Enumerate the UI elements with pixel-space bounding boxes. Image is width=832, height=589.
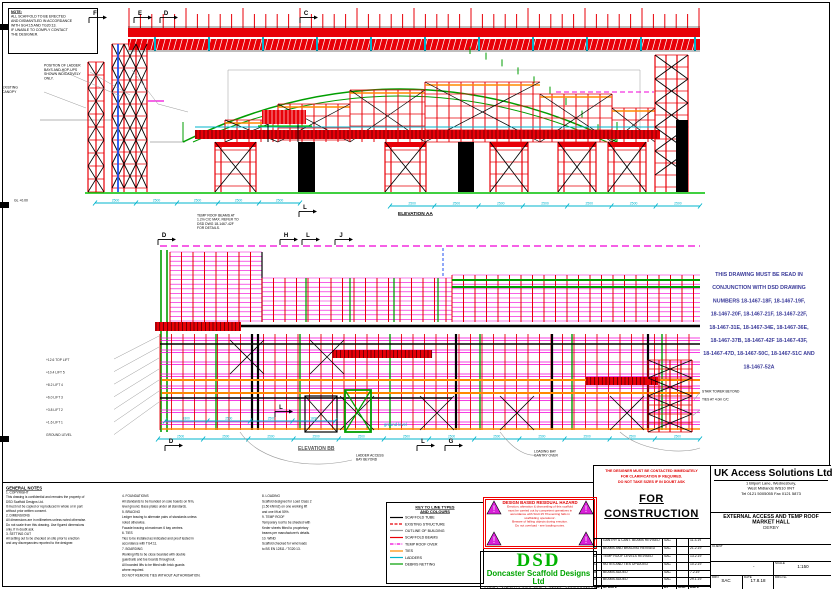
svg-text:L: L (421, 439, 425, 445)
ground-level-label: GL +0.00 (14, 199, 64, 206)
svg-text:2500: 2500 (112, 198, 120, 202)
dsd-logo: DSD (481, 552, 596, 570)
revision-row: CNOTES AND TIES UPDATEDSAC10.2.19 (593, 563, 710, 571)
revision-row: DTEMP ROOF LEVELS REVISEDSAC13.2.19 (593, 555, 710, 563)
svg-text:D: D (164, 11, 169, 17)
text-line: ONLY. (44, 77, 134, 81)
legend-label: EXISTING STRUCTURE (405, 522, 445, 527)
text-line: +10.4 LIFT 5 (46, 367, 116, 380)
legend-item: TIES (390, 547, 480, 554)
svg-text:!: ! (585, 504, 588, 514)
svg-text:2500: 2500 (541, 201, 549, 205)
svg-text:2500: 2500 (268, 416, 275, 420)
text-line: 18-1467-52A (686, 360, 832, 373)
conjunction-note: THIS DRAWING MUST BE READ INCONJUNCTION … (686, 268, 832, 479)
warning-triangle-icon: ! (578, 531, 594, 546)
svg-text:C: C (304, 11, 309, 17)
text-line: NUMBERS 18-1467-18F, 18-1467-19F, (686, 294, 832, 307)
revision-table: FGANTRY & CANT. BEAMS REVISEDSAC11.3.19E… (593, 538, 710, 589)
drg-label: DRG No. (775, 576, 787, 579)
svg-text:!: ! (493, 535, 496, 545)
legend-item: DEBRIS NETTING (390, 561, 480, 568)
company-phone: Tel 0121 5005055 Fax 0121 5873 (711, 491, 831, 496)
dsd-logo-box: DSD Doncaster Scaffold Designs Ltd Unit … (480, 551, 597, 589)
loading-bay-label: LOADING BAYGANTRY OVER (534, 450, 604, 466)
svg-text:!: ! (585, 535, 588, 545)
text-line: Do not overload - see loading notes. (484, 524, 596, 528)
ladder-bay-label: LADDER ACCESSBAY BEYOND (356, 454, 426, 470)
svg-text:2500: 2500 (493, 434, 500, 438)
svg-text:D: D (169, 439, 174, 445)
svg-text:E: E (138, 11, 142, 17)
project-location: DERBY (711, 525, 831, 531)
text-line: +6.0 LIFT 3 (46, 392, 116, 405)
revision-row: EBEAMS AND BRACING REVISEDSAC21.2.19 (593, 547, 710, 555)
ladder-note: POSITION OF LADDERBAYS AND HOP-UPSSHOWN … (44, 64, 134, 98)
svg-text:2500: 2500 (584, 434, 591, 438)
svg-text:L: L (303, 205, 307, 211)
text-line: DO NOT REMOVE TIES WITHOUT AUTHORISATION… (122, 573, 260, 578)
svg-text:L: L (279, 405, 283, 411)
svg-text:2500: 2500 (629, 434, 636, 438)
text-line: +8.2 LIFT 4 (46, 379, 116, 392)
legend-item: EXISTING STRUCTURE (390, 521, 480, 528)
text-line: +1.6 LIFT 1 (46, 417, 116, 430)
warning-triangle-icon: ! (578, 500, 594, 515)
text-line: +12.6 TOP LIFT (46, 354, 116, 367)
scale-cell: SCALE 1:150 (773, 562, 831, 575)
svg-text:2500: 2500 (586, 201, 594, 205)
legend-swatch (390, 536, 403, 538)
text-line: 18-1467-20F, 18-1467-21F, 18-1467-22F, (686, 308, 832, 321)
svg-text:2500: 2500 (408, 201, 416, 205)
company-name: UK Access Solutions Ltd (714, 468, 828, 481)
svg-text:2500: 2500 (630, 201, 638, 205)
divider (3, 482, 593, 483)
date-value: 17.8.18 (743, 576, 773, 583)
text-line: GROUND LEVEL (46, 429, 116, 442)
legend: KEY TO LINE TYPES AND COLOURS SCAFFOLD T… (386, 502, 484, 584)
scale-value: 1:150 (774, 562, 831, 569)
text-line: TIES AT 4.0m C/C (702, 396, 766, 404)
svg-text:2500: 2500 (313, 434, 320, 438)
title-block: UK Access Solutions Ltd 1 Bilport Lane, … (710, 465, 831, 588)
svg-text:G: G (449, 439, 454, 445)
svg-text:ground level: ground level (384, 422, 407, 427)
legend-label: SCAFFOLD TUBE (405, 515, 435, 520)
svg-text:!: ! (493, 504, 496, 514)
text-line: +3.8 LIFT 2 (46, 404, 116, 417)
svg-text:D: D (162, 233, 167, 239)
revision-row: BBEAMS ADDEDSAC7.2.19 (593, 571, 710, 579)
legend-label: TIES (405, 549, 413, 554)
svg-text:J: J (339, 233, 342, 239)
for-construction-stamp: FOR CONSTRUCTION (595, 492, 708, 522)
revision-row: FGANTRY & CANT. BEAMS REVISEDSAC11.3.19 (593, 539, 710, 547)
text-line: CONJUNCTION WITH DSD DRAWING (686, 281, 832, 294)
svg-text:2500: 2500 (358, 434, 365, 438)
svg-text:2500: 2500 (153, 198, 161, 202)
svg-text:2500: 2500 (235, 198, 243, 202)
drawing-sheet: 2500250025002500250025002500250025002500… (0, 0, 832, 589)
legend-item: SCAFFOLD BEAMS (390, 534, 480, 541)
svg-text:2500: 2500 (267, 434, 274, 438)
legend-label: SCAFFOLD BEAMS (405, 535, 438, 540)
client-value (711, 545, 831, 547)
canopy-label: EXISTINGCANOPY (2, 86, 46, 103)
notes-column-1: 4. FOUNDATIONS All standards to be found… (122, 494, 260, 586)
legend-item: SCAFFOLD TUBE (390, 514, 480, 521)
text-line: 18-1467-47D, 18-1467-50C, 18-1467-51C AN… (686, 347, 832, 360)
legend-swatch (390, 523, 403, 525)
text-line: GANTRY OVER (534, 454, 604, 458)
legend-swatch (390, 530, 403, 532)
text-line: BAY BEYOND (356, 458, 426, 462)
svg-text:1800: 1800 (310, 416, 317, 420)
warning-triangle-icon: ! (486, 531, 502, 546)
svg-text:2500: 2500 (453, 201, 461, 205)
text-line: 18-1467-37B, 18-1467-42F 18-1467-43F, (686, 334, 832, 347)
general-notes: GENERAL NOTES 1. COPYRIGHT This drawing … (6, 486, 118, 584)
legend-swatch (390, 563, 403, 565)
text-line: THE DESIGNER. (11, 33, 95, 38)
svg-text:1800: 1800 (183, 416, 190, 420)
legend-swatch (390, 550, 403, 552)
text-line: FOR DETAILS. (197, 227, 307, 231)
notes-column-2: 8. LOADING Scaffold designed for Load Cl… (262, 494, 372, 586)
legend-label: LADDERS (405, 555, 422, 560)
text-line: to BS EN 12811 / TG20:13. (262, 547, 372, 552)
svg-text:2500: 2500 (538, 434, 545, 438)
note-lines: ALL SCAFFOLD TO BE ERECTEDAND DISMANTLED… (11, 15, 95, 38)
warning-triangle-icon: ! (486, 500, 502, 515)
legend-item: LADDERS (390, 554, 480, 561)
legend-label: OUTLINE OF BUILDING (405, 528, 445, 533)
revision-row: ABEAMS ADDEDSAC29.1.19 (593, 578, 710, 586)
date-cell: DATE 17.8.18 (742, 576, 773, 589)
text-line: 18-1467-31E, 18-1467-34E, 18-1467-36E, (686, 321, 832, 334)
legend-swatch (390, 557, 403, 559)
legend-item: OUTLINE OF BUILDING (390, 527, 480, 534)
drg-cell: DRG No. (773, 576, 831, 589)
legend-swatch (390, 543, 403, 545)
drawn-value: SAC (711, 576, 742, 583)
legend-item: TEMP ROOF OVER (390, 541, 480, 548)
svg-text:2500: 2500 (448, 434, 455, 438)
text-line: CANOPY (2, 90, 46, 94)
right-labels: STAIR TOWER BEYONDTIES AT 4.0m C/C (702, 388, 766, 420)
svg-text:2500: 2500 (674, 434, 681, 438)
svg-text:2500: 2500 (225, 416, 232, 420)
residual-hazard-box: DESIGN BASED RESIDUAL HAZARD Erection, a… (483, 497, 597, 549)
svg-text:2500: 2500 (177, 434, 184, 438)
dsd-company: Doncaster Scaffold Designs Ltd (481, 570, 596, 587)
legend-swatch (390, 516, 403, 518)
svg-text:2500: 2500 (276, 198, 284, 202)
legend-label: DEBRIS NETTING (405, 562, 435, 567)
svg-text:2500: 2500 (222, 434, 229, 438)
legend-label: TEMP ROOF OVER (405, 542, 437, 547)
text-line: STAIR TOWER BEYOND (702, 388, 766, 396)
svg-text:2500: 2500 (497, 201, 505, 205)
text-line: THIS DRAWING MUST BE READ IN (686, 268, 832, 281)
temp-roof-note: TEMP ROOF BEAMS AT1.2m C/C MAX. REFER TO… (197, 214, 307, 248)
svg-text:2500: 2500 (674, 201, 682, 205)
svg-text:2500: 2500 (194, 198, 202, 202)
elevation-aa-title: ELEVATION AA (398, 211, 488, 222)
text-line: and any discrepancies reported to the de… (6, 541, 118, 546)
text-line: DO NOT TAKE SIZES IF IN DOUBT ASK (595, 479, 708, 485)
top-left-note-box: NOTE: ALL SCAFFOLD TO BE ERECTEDAND DISM… (8, 8, 98, 54)
svg-text:2500: 2500 (403, 434, 410, 438)
